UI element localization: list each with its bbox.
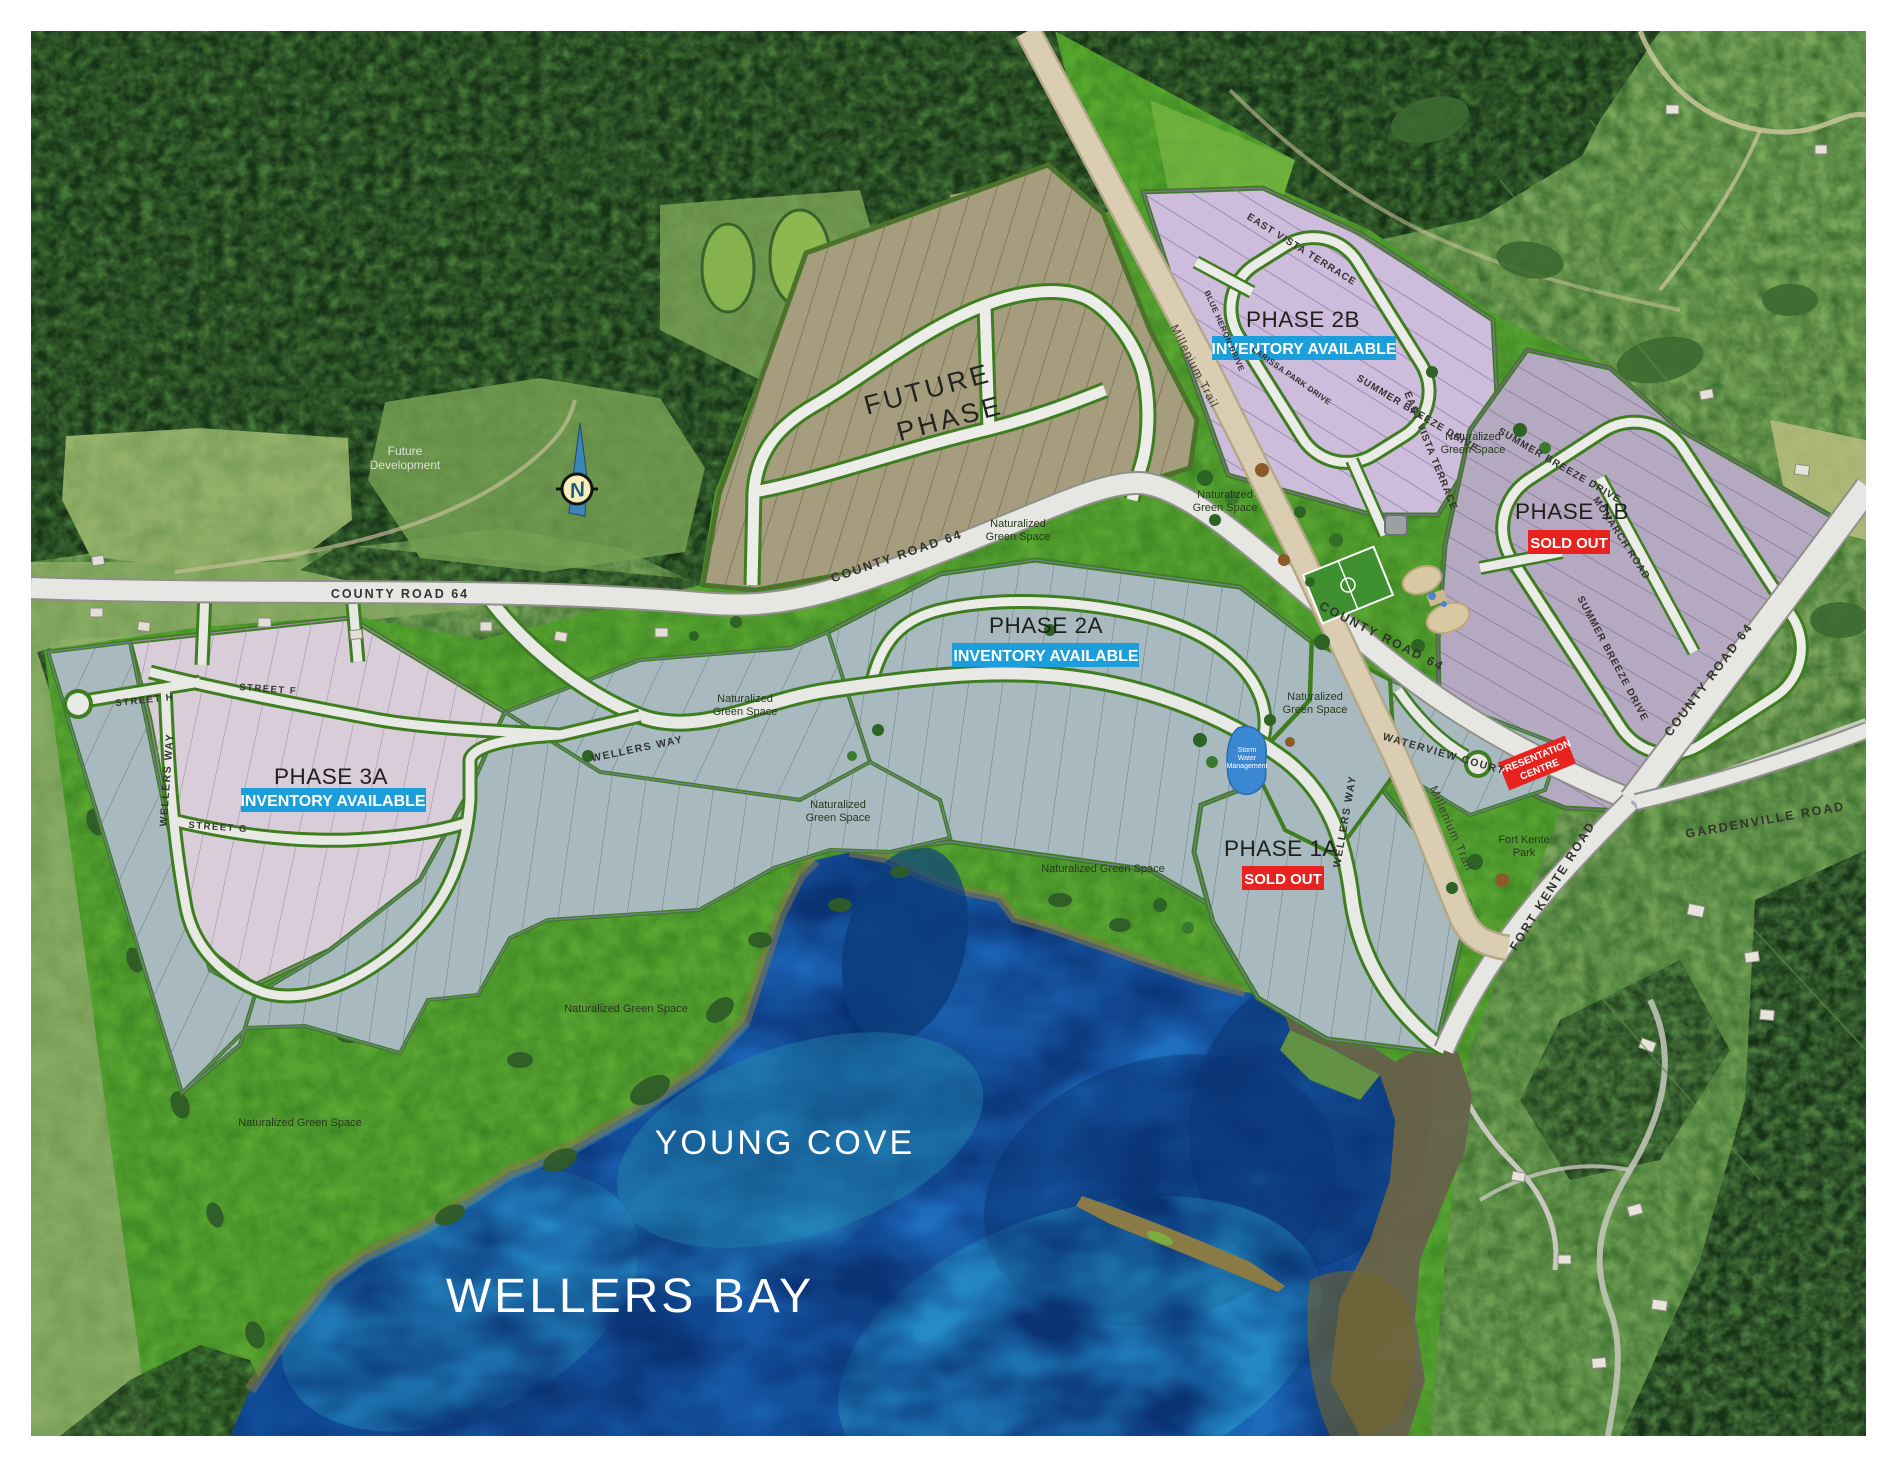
svg-text:Green Space: Green Space [986, 531, 1051, 543]
svg-text:Green Space: Green Space [713, 706, 778, 718]
svg-text:Green Space: Green Space [1283, 704, 1348, 716]
svg-text:Future: Future [388, 444, 423, 458]
svg-text:INVENTORY AVAILABLE: INVENTORY AVAILABLE [240, 793, 426, 810]
svg-text:Naturalized: Naturalized [810, 799, 866, 811]
svg-text:Naturalized: Naturalized [717, 693, 773, 705]
svg-text:PHASE 2B: PHASE 2B [1246, 307, 1360, 332]
svg-text:SOLD OUT: SOLD OUT [1530, 535, 1608, 552]
svg-text:Green Space: Green Space [1441, 444, 1506, 456]
svg-text:Green Space: Green Space [806, 812, 871, 824]
svg-text:SOLD OUT: SOLD OUT [1244, 871, 1322, 888]
svg-text:Green Space: Green Space [1193, 502, 1258, 514]
svg-text:Development: Development [370, 458, 441, 472]
svg-text:Naturalized Green Space: Naturalized Green Space [1041, 863, 1165, 875]
svg-text:Naturalized Green Space: Naturalized Green Space [564, 1003, 688, 1015]
svg-text:YOUNG COVE: YOUNG COVE [655, 1124, 915, 1162]
svg-text:Naturalized: Naturalized [990, 518, 1046, 530]
svg-text:Park: Park [1513, 847, 1536, 859]
svg-text:Naturalized: Naturalized [1287, 691, 1343, 703]
svg-text:Water: Water [1238, 755, 1257, 762]
svg-text:Naturalized Green Space: Naturalized Green Space [238, 1117, 362, 1129]
svg-text:Naturalized: Naturalized [1445, 431, 1501, 443]
svg-text:Storm: Storm [1238, 747, 1257, 754]
svg-text:WELLERS BAY: WELLERS BAY [446, 1270, 814, 1323]
svg-text:Fort Kente: Fort Kente [1498, 834, 1549, 846]
svg-text:COUNTY ROAD 64: COUNTY ROAD 64 [331, 587, 469, 601]
svg-text:PHASE 2A: PHASE 2A [989, 613, 1103, 638]
svg-text:PHASE 3A: PHASE 3A [274, 764, 388, 789]
svg-text:INVENTORY AVAILABLE: INVENTORY AVAILABLE [953, 648, 1139, 665]
svg-text:PHASE 1A: PHASE 1A [1224, 836, 1338, 861]
svg-text:Naturalized: Naturalized [1197, 489, 1253, 501]
svg-text:Management: Management [1227, 763, 1268, 770]
